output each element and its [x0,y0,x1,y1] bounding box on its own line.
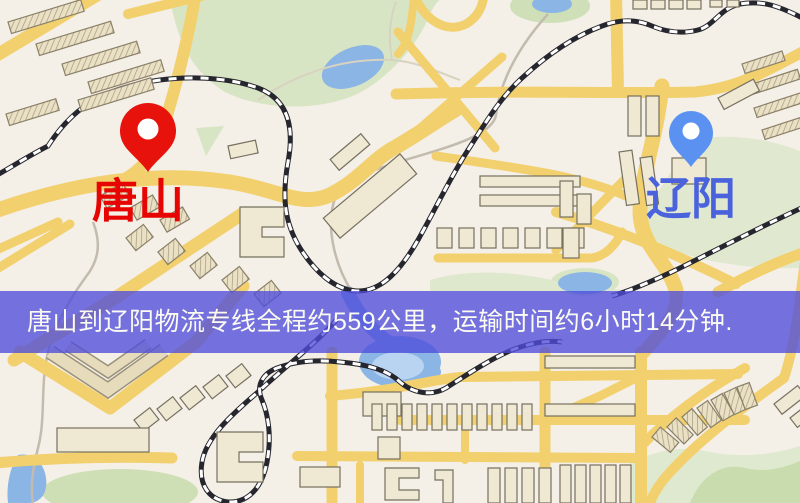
destination-city-label: 辽阳 [646,177,736,222]
map-view: 唐山 辽阳 唐山到辽阳物流专线全程约559公里，运输时间约6小时14分钟. [0,0,800,503]
route-info-banner: 唐山到辽阳物流专线全程约559公里，运输时间约6小时14分钟. [0,291,800,353]
origin-city-label: 唐山 [92,179,184,225]
route-info-text: 唐山到辽阳物流专线全程约559公里，运输时间约6小时14分钟. [0,291,800,353]
map-canvas [0,0,800,503]
